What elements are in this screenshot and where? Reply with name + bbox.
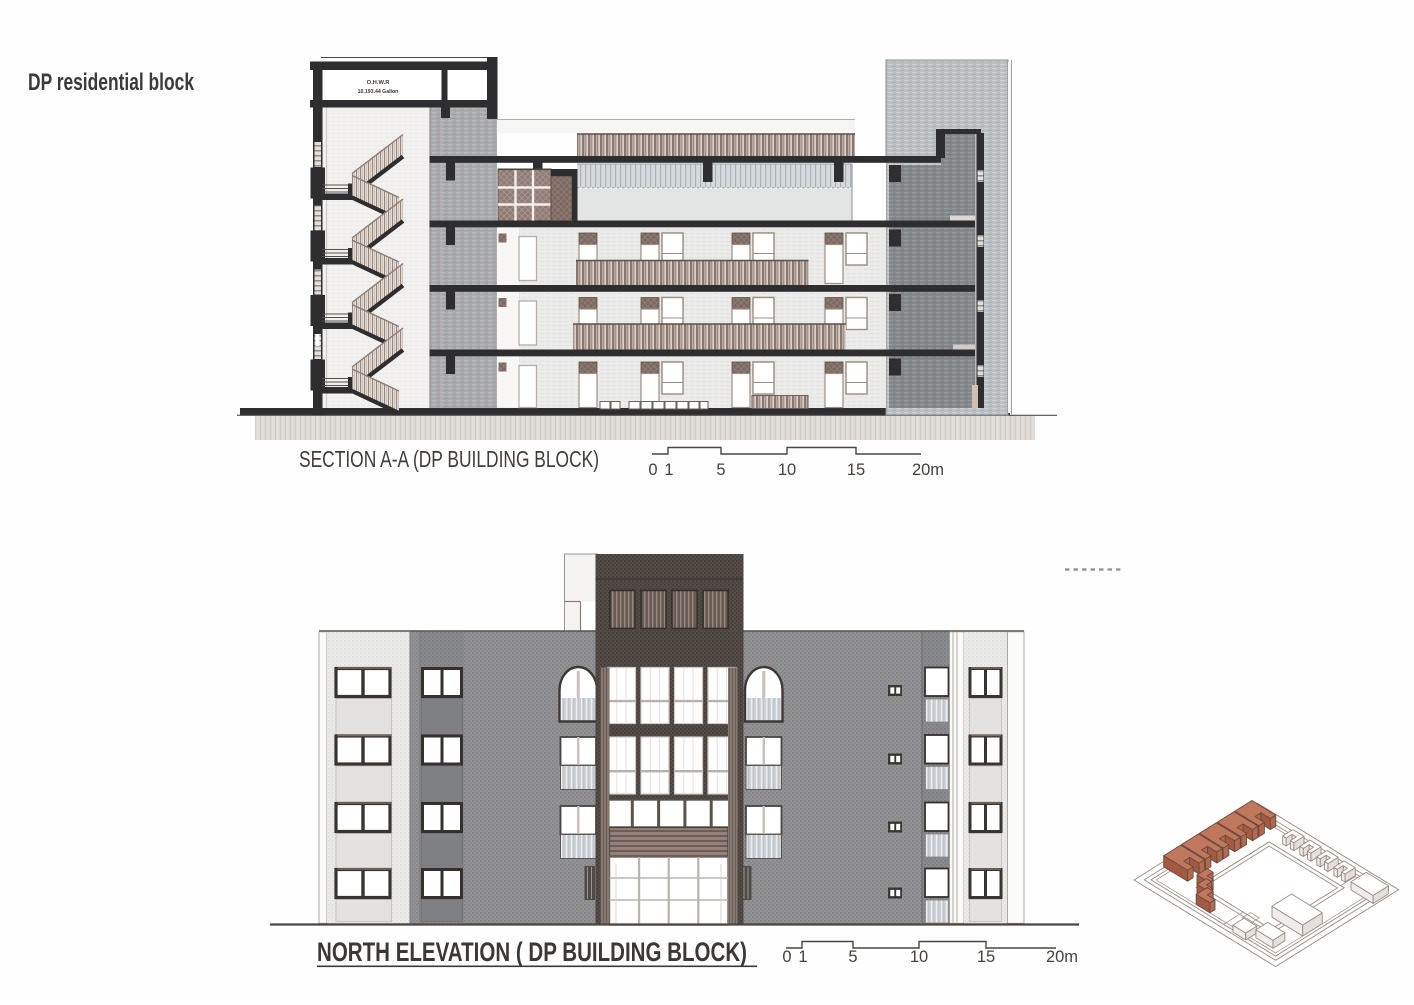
- svg-text:0: 0: [648, 461, 657, 479]
- svg-text:15: 15: [847, 461, 865, 479]
- svg-text:DP residential block: DP residential block: [28, 69, 194, 96]
- svg-text:20m: 20m: [1046, 948, 1078, 966]
- svg-text:15: 15: [977, 948, 995, 966]
- svg-text:20m: 20m: [912, 461, 944, 479]
- svg-text:5: 5: [848, 948, 857, 966]
- svg-text:SECTION A-A (DP BUILDING BLOCK: SECTION A-A (DP BUILDING BLOCK): [299, 446, 599, 472]
- svg-text:10,193.44 Gallon: 10,193.44 Gallon: [358, 89, 399, 95]
- svg-text:O.H.W.R: O.H.W.R: [367, 80, 391, 86]
- svg-text:1: 1: [798, 948, 807, 966]
- svg-text:1: 1: [664, 461, 673, 479]
- svg-text:5: 5: [716, 461, 725, 479]
- svg-text:10: 10: [910, 948, 928, 966]
- svg-text:0: 0: [782, 948, 791, 966]
- svg-text:NORTH ELEVATION ( DP BUILDING: NORTH ELEVATION ( DP BUILDING BLOCK): [317, 937, 747, 967]
- svg-text:10: 10: [778, 461, 796, 479]
